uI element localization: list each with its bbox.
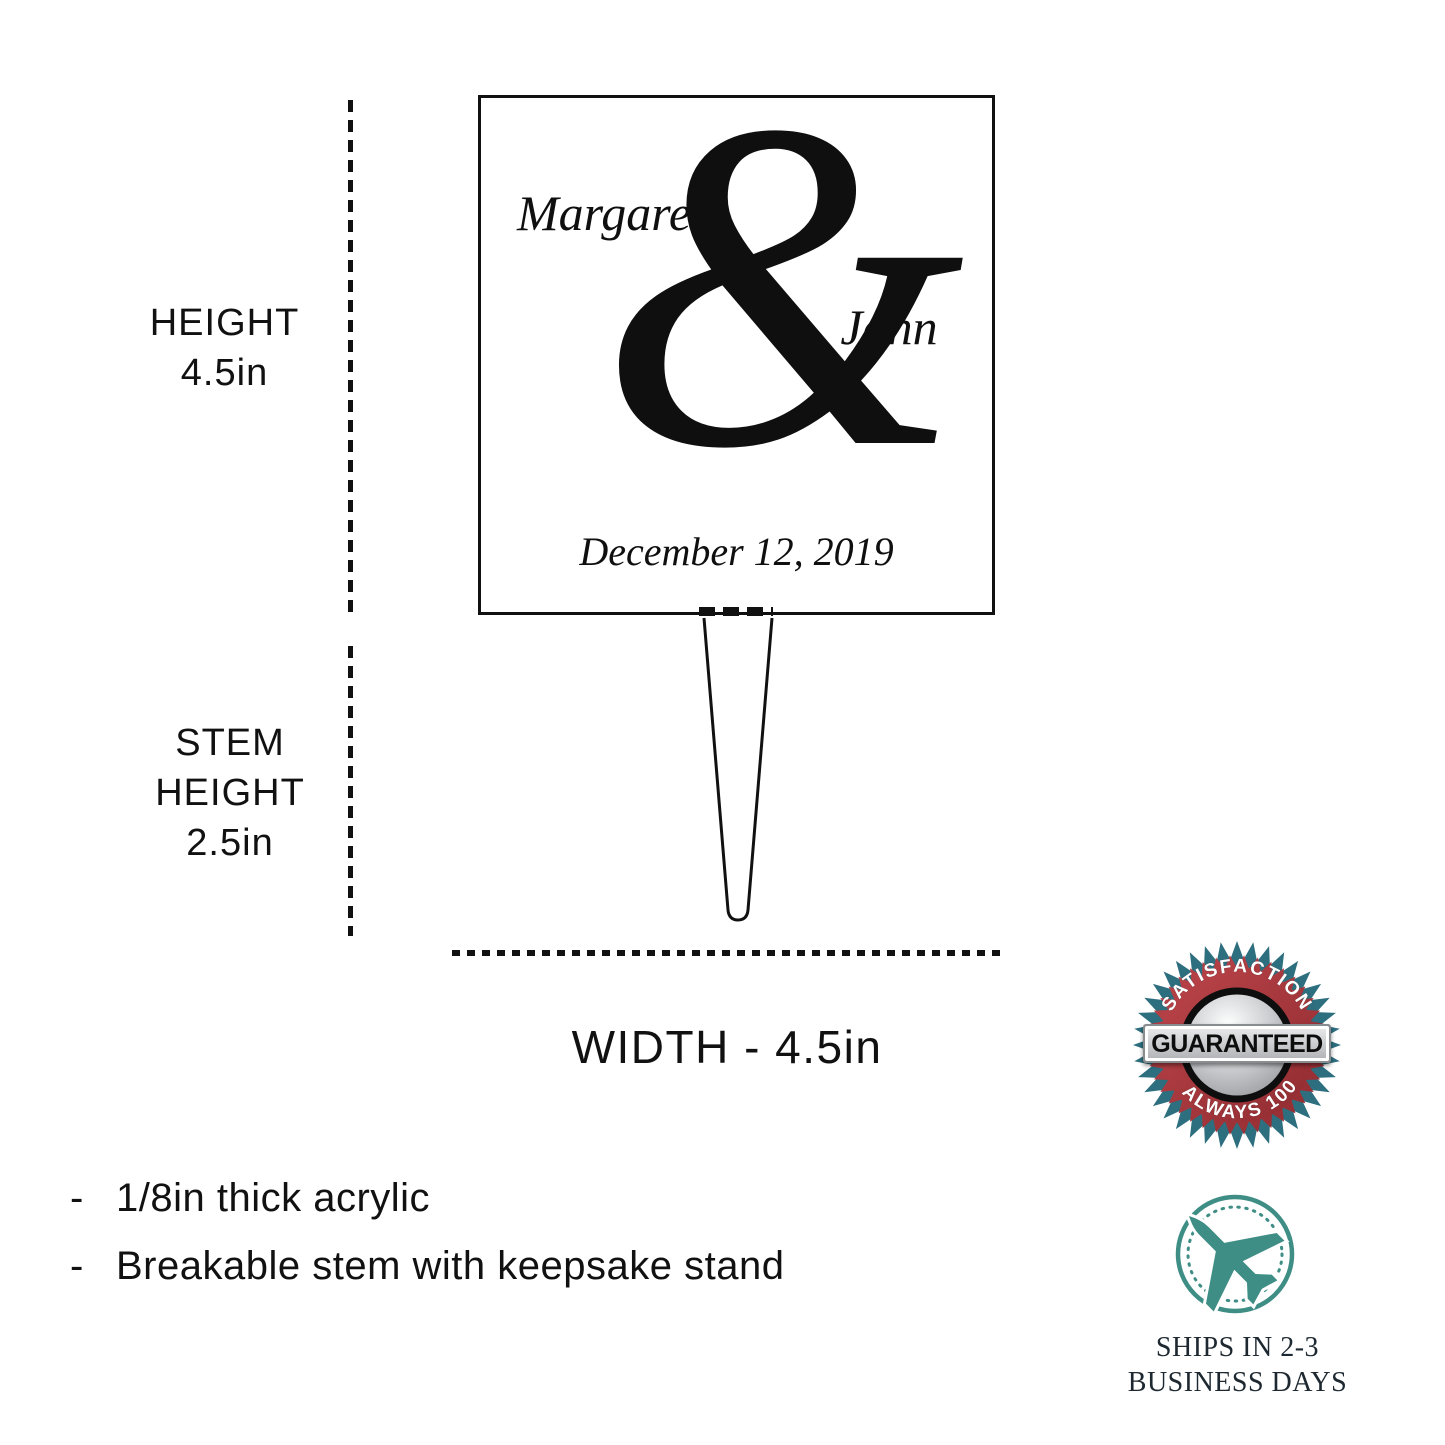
badge-center-text: GUARANTEED — [1151, 1030, 1322, 1058]
stem-value-text: 2.5in — [115, 818, 345, 868]
satisfaction-guaranteed-badge-icon: SATISFACTION IS ALWAYS 100% GUARANTEED — [1127, 935, 1347, 1155]
product-diagram: Margaret & John December 12, 2019 HEIGHT… — [0, 0, 1445, 1445]
stem-height-guide-line — [348, 646, 353, 936]
width-guide-line — [452, 950, 1004, 956]
topper-date: December 12, 2019 — [481, 528, 992, 575]
list-item: - Breakable stem with keepsake stand — [70, 1244, 784, 1289]
bullet-dash: - — [70, 1176, 116, 1221]
height-label-text: HEIGHT — [112, 298, 337, 348]
airplane-icon — [1155, 1174, 1315, 1334]
shipping-line1: SHIPS IN 2-3 — [1110, 1330, 1365, 1365]
list-item: - 1/8in thick acrylic — [70, 1176, 784, 1221]
height-guide-line — [348, 100, 353, 612]
cake-topper-square: Margaret & John December 12, 2019 — [478, 95, 995, 615]
width-dimension-label: WIDTH - 4.5in — [447, 1022, 1007, 1072]
bullet-dash: - — [70, 1244, 116, 1289]
height-dimension-label: HEIGHT 4.5in — [112, 298, 337, 398]
topper-stem — [690, 610, 790, 930]
feature-list: - 1/8in thick acrylic - Breakable stem w… — [70, 1176, 784, 1312]
feature-text: Breakable stem with keepsake stand — [116, 1244, 784, 1289]
shipping-time-text: SHIPS IN 2-3 BUSINESS DAYS — [1110, 1330, 1365, 1400]
stem-label-line1: STEM — [115, 718, 345, 768]
height-value-text: 4.5in — [112, 348, 337, 398]
stem-dimension-label: STEM HEIGHT 2.5in — [115, 718, 345, 868]
badge-banner: GUARANTEED — [1143, 1024, 1331, 1063]
topper-name-bottom: John — [799, 298, 979, 356]
shipping-line2: BUSINESS DAYS — [1110, 1365, 1365, 1400]
ampersand-glyph: & — [599, 50, 965, 520]
stem-label-line2: HEIGHT — [115, 768, 345, 818]
feature-text: 1/8in thick acrylic — [116, 1176, 430, 1221]
breakable-perforation-dashes — [699, 607, 773, 616]
